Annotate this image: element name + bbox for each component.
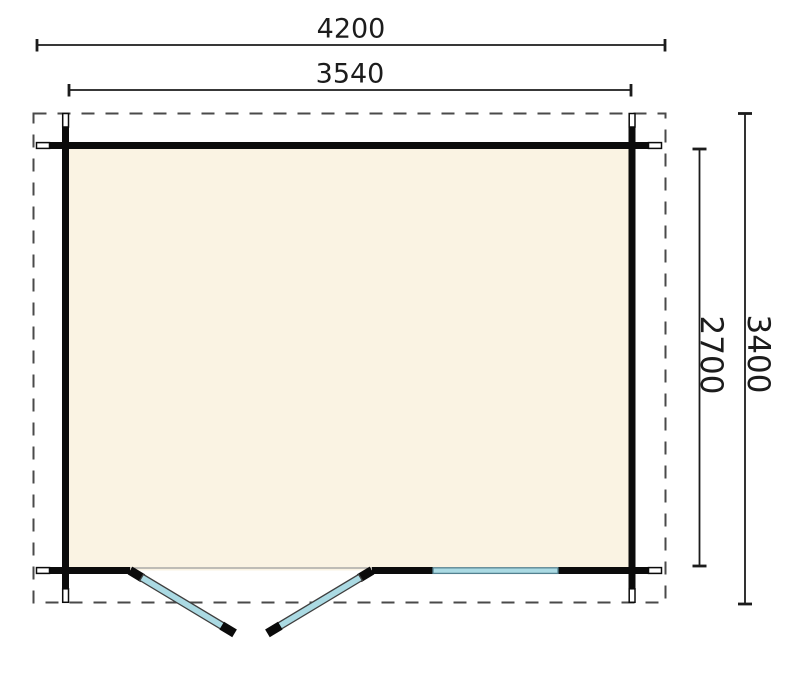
dimension-inner-depth: 2700 [693,149,730,566]
log-end-tip [649,143,662,149]
log-end-tip [63,114,69,128]
log-end-solid [629,573,636,589]
floor-plan-canvas: 4200 3540 [0,0,799,678]
dimension-outer-wall-width-label: 3540 [316,59,385,90]
log-end-solid [62,127,69,143]
log-end-tip [63,589,69,603]
log-end-tip [649,568,662,574]
log-end-solid [635,142,649,149]
log-end-solid [629,127,636,143]
floor-area [66,146,633,571]
log-end-solid [49,142,63,149]
log-end-tip [629,589,635,603]
dimension-outer-wall-width: 3540 [69,59,631,97]
log-end-tip [37,143,50,149]
dimension-overall-depth-label: 3400 [740,315,776,394]
dimension-inner-depth-label: 2700 [693,316,729,395]
dimension-overall-depth: 3400 [738,114,776,605]
window [433,568,558,574]
floor-plan-drawing: 4200 3540 [0,0,799,678]
log-end-solid [635,567,649,574]
log-end-solid [62,573,69,589]
log-end-tip [37,568,50,574]
log-end-solid [49,567,63,574]
log-end-tip [629,114,635,128]
dimension-overall-width-label: 4200 [317,14,386,45]
dimension-overall-width: 4200 [37,14,665,52]
